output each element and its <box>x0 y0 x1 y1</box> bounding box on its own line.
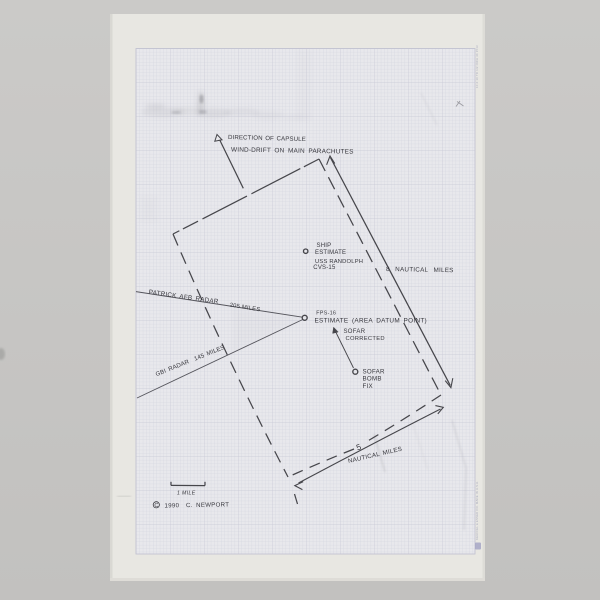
svg-text:C: C <box>154 503 158 509</box>
svg-text:SOFAR: SOFAR <box>363 369 386 376</box>
svg-text:SHIP: SHIP <box>317 243 332 249</box>
svg-text:FPS-16: FPS-16 <box>316 311 336 317</box>
svg-text:CORRECTED: CORRECTED <box>346 336 385 342</box>
svg-text:FIX: FIX <box>363 383 373 390</box>
svg-text:10 X 10 TO 1/2 INCH 46 1513: 10 X 10 TO 1/2 INCH 46 1513 <box>475 45 479 88</box>
svg-text:CVS-15: CVS-15 <box>313 265 336 271</box>
svg-text:KEUFFEL & ESSER CO. MADE IN U.: KEUFFEL & ESSER CO. MADE IN U.S.A. <box>475 481 479 540</box>
svg-text:BOMB: BOMB <box>363 376 382 383</box>
svg-text:ESTIMATE (AREA DATUM POINT): ESTIMATE (AREA DATUM POINT) <box>315 317 428 324</box>
svg-text:1990 C. NEWPORT: 1990 C. NEWPORT <box>164 501 229 509</box>
svg-text:8 NAUTICAL MILES: 8 NAUTICAL MILES <box>386 266 454 274</box>
svg-text:ESTIMATE: ESTIMATE <box>315 250 346 256</box>
svg-text:1 MILE: 1 MILE <box>177 490 196 496</box>
svg-text:SOFAR: SOFAR <box>344 329 366 335</box>
